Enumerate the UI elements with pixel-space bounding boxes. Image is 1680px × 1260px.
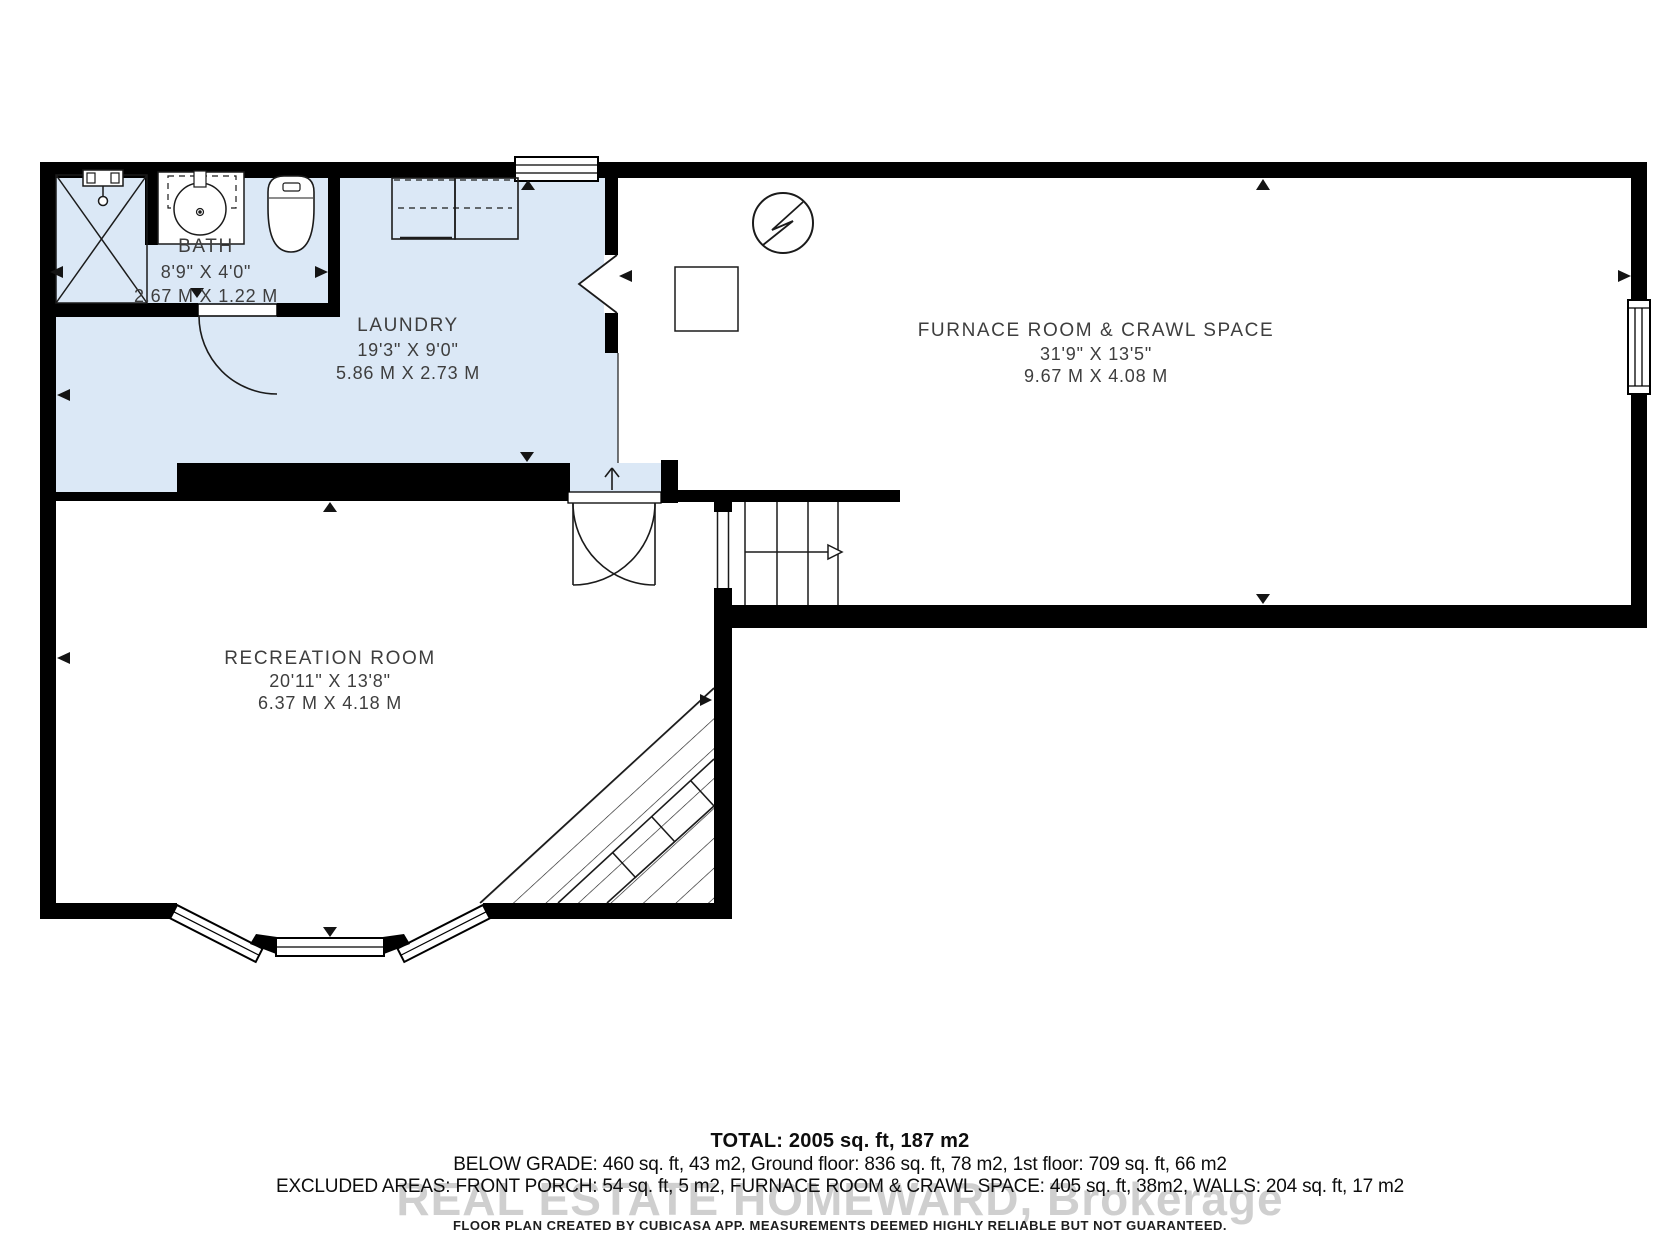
recreation-dim-m: 6.37 M X 4.18 M	[258, 693, 402, 713]
laundry-name: LAUNDRY	[357, 315, 459, 336]
total-area-text: TOTAL: 2005 sq. ft, 187 m2	[0, 1130, 1680, 1153]
area-breakdown-text: BELOW GRADE: 460 sq. ft, 43 m2, Ground f…	[0, 1154, 1680, 1176]
recreation-dim-ft: 20'11" X 13'8"	[269, 671, 391, 691]
room-label-recreation: RECREATION ROOM 20'11" X 13'8" 6.37 M X …	[224, 648, 436, 713]
furnace-name: FURNACE ROOM & CRAWL SPACE	[918, 320, 1275, 341]
under-stair-hatch	[480, 688, 714, 903]
laundry-dim-ft: 19'3" X 9'0"	[357, 340, 458, 360]
recreation-name: RECREATION ROOM	[224, 648, 436, 669]
window-top	[515, 157, 598, 181]
furnace-unit-icon	[675, 267, 738, 331]
highlighted-area	[48, 170, 661, 493]
electrical-panel-icon	[753, 193, 813, 253]
excluded-areas-text: EXCLUDED AREAS: FRONT PORCH: 54 sq. ft, …	[0, 1176, 1680, 1198]
disclaimer-text: FLOOR PLAN CREATED BY CUBICASA APP. MEAS…	[0, 1218, 1680, 1233]
bath-dim-m: 2.67 M X 1.22 M	[134, 286, 278, 306]
furnace-dim-ft: 31'9" X 13'5"	[1040, 344, 1152, 364]
toilet-icon	[268, 176, 314, 252]
floor-plan-page: BATH 8'9" X 4'0" 2.67 M X 1.22 M LAUNDRY…	[0, 0, 1680, 1260]
stairs-direction-arrow	[828, 545, 842, 559]
sink-icon	[158, 171, 244, 244]
stairwell-edge	[714, 512, 732, 588]
room-label-laundry: LAUNDRY 19'3" X 9'0" 5.86 M X 2.73 M	[336, 315, 480, 383]
bath-name: BATH	[178, 236, 234, 257]
floor-plan-drawing: BATH 8'9" X 4'0" 2.67 M X 1.22 M LAUNDRY…	[0, 0, 1680, 1260]
bath-dim-ft: 8'9" X 4'0"	[161, 262, 252, 282]
laundry-dim-m: 5.86 M X 2.73 M	[336, 363, 480, 383]
window-right	[1628, 300, 1650, 394]
room-label-furnace: FURNACE ROOM & CRAWL SPACE 31'9" X 13'5"…	[918, 320, 1275, 386]
furnace-dim-m: 9.67 M X 4.08 M	[1024, 366, 1168, 386]
swing-doors	[573, 503, 655, 585]
staircase	[745, 502, 842, 605]
